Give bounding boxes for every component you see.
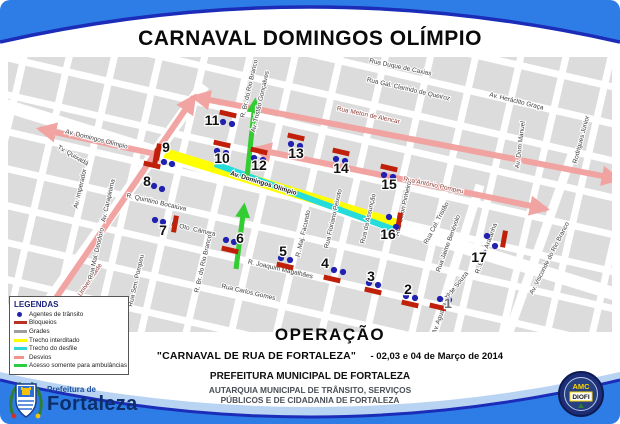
post-number: 15	[381, 176, 397, 192]
post-number: 5	[279, 243, 287, 259]
post-number: 11	[205, 112, 220, 128]
traffic-agent-dot	[220, 119, 226, 125]
legend-item: Bloqueios	[14, 319, 124, 328]
legend-swatch-arrow	[14, 356, 29, 359]
legend-swatch-bar	[14, 364, 29, 367]
slide-canvas: CARNAVAL DOMINGOS OLÍMPIO Av. Domingos O…	[0, 0, 620, 424]
legend-items: Agentes de trânsitoBloqueiosGradesTrecho…	[14, 310, 124, 370]
traffic-agent-dot	[169, 161, 175, 167]
amc-badge-icon: AMC DIOFI	[558, 371, 604, 417]
traffic-agent-dot	[229, 121, 235, 127]
footer-block: PREFEITURA MUNICIPAL DE FORTALEZA AUTARQ…	[110, 371, 510, 405]
post-number: 2	[404, 281, 412, 297]
numbered-post: 13	[287, 133, 305, 161]
legend-item-label: Grades	[29, 328, 50, 335]
numbered-post: 14	[332, 148, 350, 176]
legend-item: Trecho do desfile	[14, 344, 124, 353]
legend-item-label: Trecho do desfile	[29, 345, 77, 352]
numbered-post: 10	[213, 140, 231, 166]
post-number: 6	[236, 230, 244, 246]
post-number: 16	[380, 226, 396, 242]
legend-swatch-bar	[14, 321, 29, 324]
traffic-agent-dot	[412, 295, 418, 301]
legend-item-label: Agentes de trânsito	[29, 311, 83, 318]
legend-swatch-bar	[14, 339, 29, 342]
traffic-agent-dot	[492, 243, 498, 249]
traffic-agent-dot	[484, 233, 490, 239]
footer-line2: AUTARQUIA MUNICIPAL DE TRÂNSITO, SERVIÇO…	[110, 385, 510, 395]
traffic-agent-dot	[159, 186, 165, 192]
traffic-agent-dot	[437, 296, 443, 302]
post-number: 14	[333, 160, 349, 176]
legend-item: Trecho interditado	[14, 336, 124, 345]
logo-big-text: Fortaleza	[47, 394, 138, 414]
legend-swatch-dot	[14, 312, 29, 317]
legend-swatch-bar	[14, 330, 29, 333]
traffic-agent-dot	[151, 183, 157, 189]
fortaleza-logo-text: Prefeitura de Fortaleza	[47, 386, 138, 414]
legend-item-label: Desvios	[29, 354, 51, 361]
post-number: 8	[143, 173, 151, 189]
legend-item: Agentes de trânsito	[14, 310, 124, 319]
amc-badge: AMC DIOFI	[558, 371, 604, 422]
operation-name: "CARNAVAL DE RUA DE FORTALEZA"	[157, 350, 356, 362]
fortaleza-logo: Prefeitura de Fortaleza	[8, 379, 138, 421]
badge-diofi-text: DIOFI	[572, 394, 590, 401]
traffic-agent-dot	[152, 217, 158, 223]
post-number: 13	[288, 145, 304, 161]
fortaleza-crest-icon	[8, 379, 44, 421]
traffic-agent-dot	[331, 267, 337, 273]
badge-amc-text: AMC	[572, 382, 590, 391]
operation-heading: OPERAÇÃO	[110, 325, 550, 345]
post-number: 3	[367, 268, 375, 284]
footer-line3: PÚBLICOS E DE CIDADANIA DE FORTALEZA	[110, 395, 510, 405]
legend-item: Acesso somente para ambulâncias	[14, 362, 124, 371]
legend-swatch-bar	[14, 347, 29, 350]
legend-item-label: Bloqueios	[29, 319, 57, 326]
numbered-post: 15	[380, 164, 398, 192]
traffic-agent-dot	[375, 282, 381, 288]
operation-block: OPERAÇÃO "CARNAVAL DE RUA DE FORTALEZA" …	[110, 325, 550, 364]
operation-dates: - 02,03 e 04 de Março de 2014	[371, 351, 504, 362]
post-number: 9	[162, 139, 170, 155]
post-number: 7	[159, 222, 167, 238]
operation-subline: "CARNAVAL DE RUA DE FORTALEZA" - 02,03 e…	[110, 346, 550, 364]
traffic-agent-dot	[287, 257, 293, 263]
traffic-agent-dot	[161, 159, 167, 165]
traffic-agent-dot	[223, 237, 229, 243]
post-number: 10	[214, 150, 230, 166]
legend-title: LEGENDAS	[14, 300, 124, 309]
numbered-post: 12	[250, 147, 268, 173]
footer-line1: PREFEITURA MUNICIPAL DE FORTALEZA	[110, 371, 510, 382]
post-number: 4	[321, 255, 329, 271]
page-title: CARNAVAL DOMINGOS OLÍMPIO	[0, 27, 620, 51]
legend-item: Desvios	[14, 353, 124, 362]
traffic-agent-dot	[340, 269, 346, 275]
post-number: 12	[251, 157, 267, 173]
post-number: 17	[471, 249, 487, 265]
post-number: 1	[444, 295, 452, 311]
traffic-agent-dot	[386, 214, 392, 220]
street-map: Av. Domingos OlímpioAv. Domingos Olímpio…	[8, 57, 612, 332]
legend-item-label: Trecho interditado	[29, 337, 80, 344]
legend-item: Grades	[14, 327, 124, 336]
